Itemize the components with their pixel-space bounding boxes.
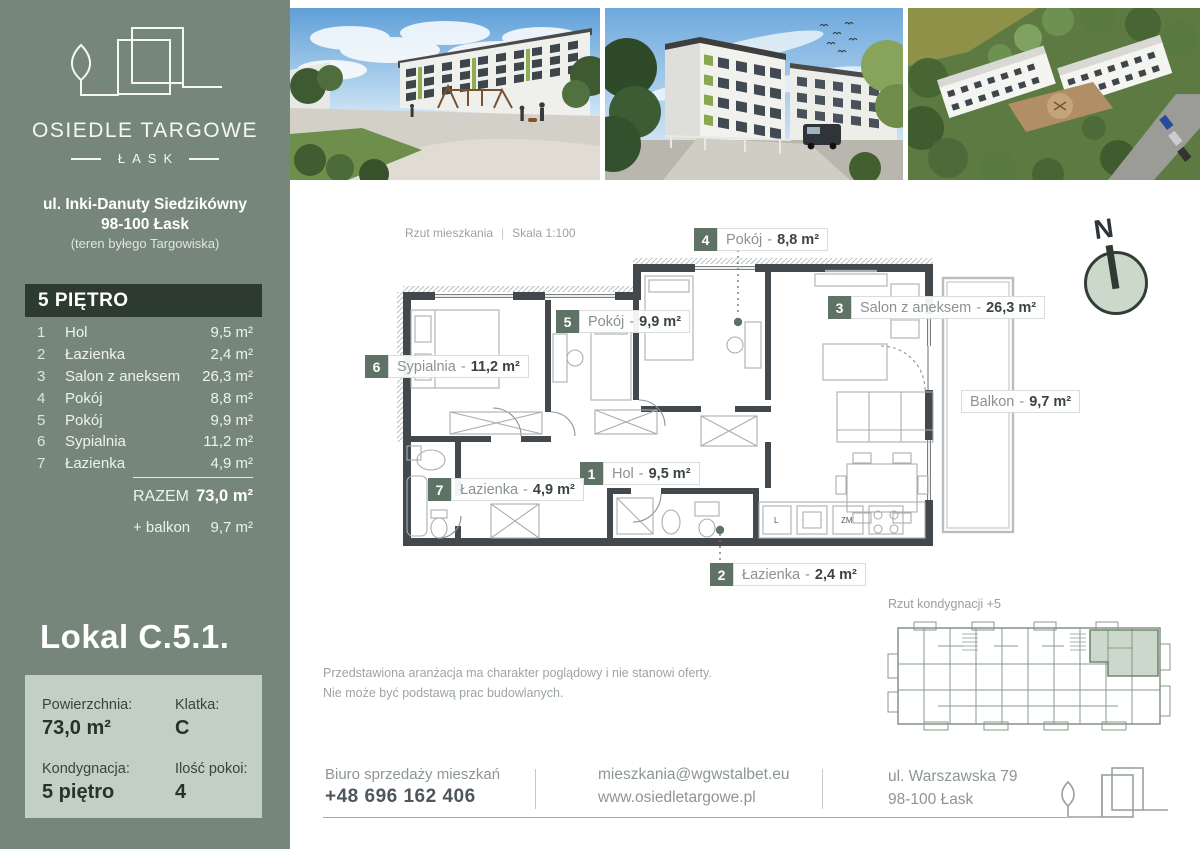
total-row: RAZEM 73,0 m² xyxy=(133,487,253,506)
highlighted-unit xyxy=(1090,630,1158,676)
footer-logo-icon xyxy=(1050,757,1190,819)
photo-building-street-render xyxy=(605,8,903,180)
compass-north-label: N xyxy=(1092,213,1116,246)
storey-value: 5 piętro xyxy=(42,781,114,804)
balcony-label: Balkon-9,7 m² xyxy=(961,390,1080,413)
footer-divider xyxy=(822,769,823,809)
area-value: 73,0 m² xyxy=(42,717,111,740)
footer-divider xyxy=(535,769,536,809)
project-address-line2: 98-100 Łask xyxy=(0,216,290,234)
photo-playground-render xyxy=(290,8,600,180)
storey-label: Kondygnacja: xyxy=(42,761,130,777)
table-row: 2 Łazienka 2,4 m² xyxy=(25,344,262,366)
room-label-6: 6 Sypialnia-11,2 m² xyxy=(365,355,529,378)
sidebar: OSIEDLE TARGOWE ŁASK ul. Inki-Danuty Sie… xyxy=(0,0,290,849)
plan-caption: Rzut mieszkania|Skala 1:100 xyxy=(405,226,576,240)
unit-title: Lokal C.5.1. xyxy=(40,618,229,656)
unit-info-box: Powierzchnia: 73,0 m² Klatka: C Kondygna… xyxy=(25,675,262,818)
table-row: 5 Pokój 9,9 m² xyxy=(25,409,262,431)
storey-plan xyxy=(884,614,1190,746)
table-row: 6 Sypialnia 11,2 m² xyxy=(25,431,262,453)
page: { "colors": { "sidebar_green": "#77867b"… xyxy=(0,0,1200,849)
dash-left xyxy=(71,158,101,160)
storey-plan-caption: Rzut kondygnacji +5 xyxy=(888,597,1001,611)
room-label-7: 7 Łazienka-4,9 m² xyxy=(428,478,584,501)
disclaimer: Przedstawiona aranżacja ma charakter pog… xyxy=(323,663,712,703)
kitchen-zm-label: ZM xyxy=(841,516,853,525)
brand-logo-icon xyxy=(40,15,245,115)
stair-label: Klatka: xyxy=(175,697,219,713)
room-label-3: 3 Salon z aneksem-26,3 m² xyxy=(828,296,1045,319)
total-area: 73,0 m² xyxy=(196,487,253,506)
floor-header: 5 PIĘTRO xyxy=(25,284,262,317)
balcony-row: + balkon 9,7 m² xyxy=(133,519,253,536)
contact-website: www.osiedletargowe.pl xyxy=(598,789,756,807)
room-label-1: 1 Hol-9,5 m² xyxy=(580,462,700,485)
rooms-value: 4 xyxy=(175,781,186,804)
sales-office-label: Biuro sprzedaży mieszkań xyxy=(325,766,500,783)
balcony-area: 9,7 m² xyxy=(210,519,253,536)
stair-value: C xyxy=(175,717,189,740)
room-label-5: 5 Pokój-9,9 m² xyxy=(556,310,690,333)
kitchen-l-label: L xyxy=(774,516,779,525)
rooms-label: Ilość pokoi: xyxy=(175,761,248,777)
project-address-line1: ul. Inki-Danuty Siedzikówny xyxy=(0,196,290,214)
table-row: 3 Salon z aneksem 26,3 m² xyxy=(25,366,262,388)
brand-name: OSIEDLE TARGOWE xyxy=(0,119,290,143)
room-table: 1 Hol 9,5 m² 2 Łazienka 2,4 m² 3 Salon z… xyxy=(25,322,262,475)
room-label-4: 4 Pokój-8,8 m² xyxy=(694,228,828,251)
sales-phone: +48 696 162 406 xyxy=(325,786,476,808)
dash-right xyxy=(189,158,219,160)
area-label: Powierzchnia: xyxy=(42,697,132,713)
project-address-line3: (teren byłego Targowiska) xyxy=(0,236,290,251)
office-address-line2: 98-100 Łask xyxy=(888,791,973,809)
brand-sub: ŁASK xyxy=(0,151,290,166)
table-row: 7 Łazienka 4,9 m² xyxy=(25,453,262,475)
contact-email: mieszkania@wgwstalbet.eu xyxy=(598,766,790,784)
office-address-line1: ul. Warszawska 79 xyxy=(888,768,1018,786)
room-label-2: 2 Łazienka-2,4 m² xyxy=(710,563,866,586)
total-divider xyxy=(133,477,253,478)
table-row: 4 Pokój 8,8 m² xyxy=(25,387,262,409)
photo-aerial-render xyxy=(908,8,1200,180)
table-row: 1 Hol 9,5 m² xyxy=(25,322,262,344)
footer-rule xyxy=(323,817,1067,818)
